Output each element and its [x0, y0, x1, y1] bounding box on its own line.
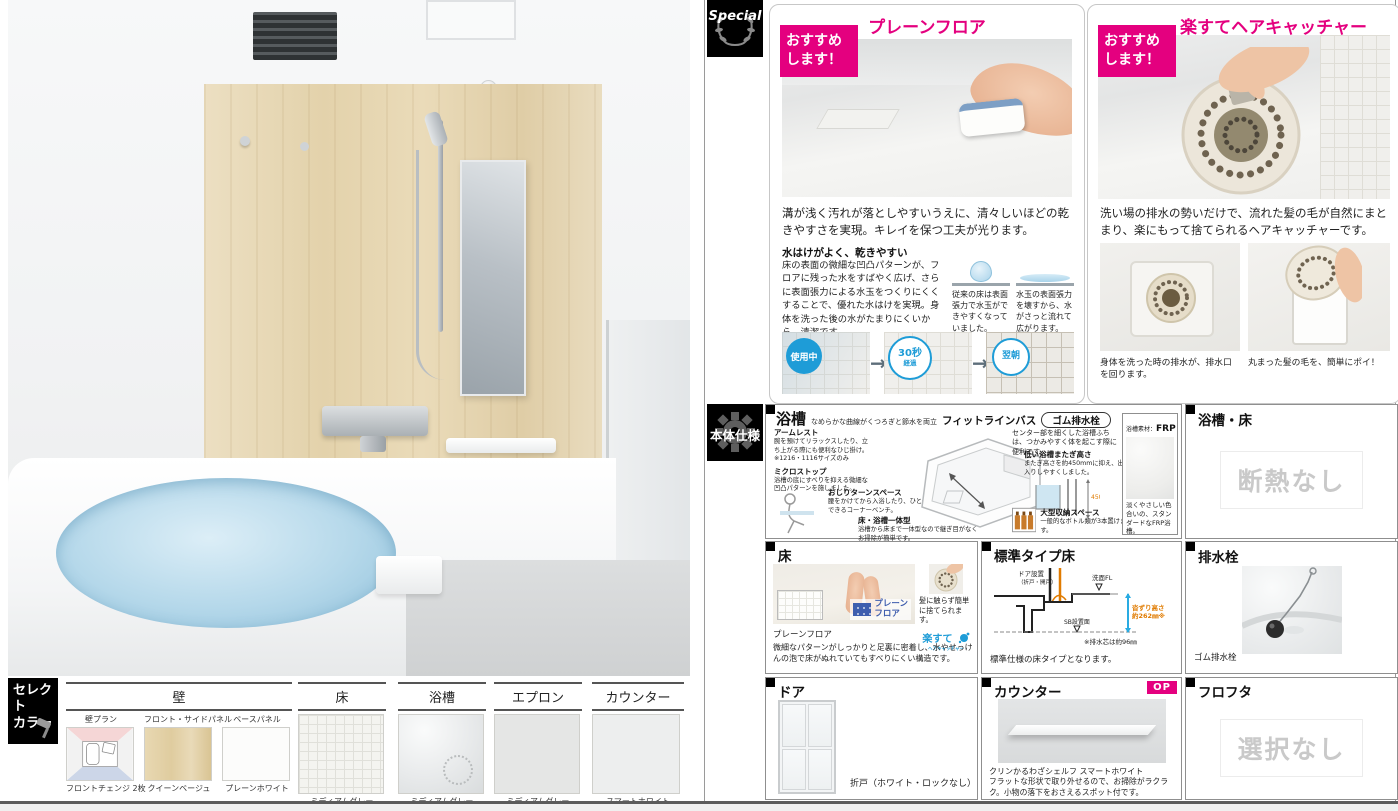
color-swatch — [298, 714, 384, 794]
hair-catcher-panel: おすすめ します！ 楽すてヘアキャッチャー 洗い場の排水の勢いだけで、流れた髪の… — [1087, 4, 1398, 404]
drain-plug-panel: 排水栓 ゴム排水栓 — [1185, 541, 1398, 674]
color-group-apron: エプロン ミディアムグレー — [494, 682, 582, 807]
spec-section-badge: 本体仕様 — [707, 404, 763, 461]
tub-floor-title: 浴槽・床 — [1198, 409, 1397, 429]
spread-water-icon — [1020, 274, 1070, 282]
floor-caption: プレーンフロア 微細なパターンがしっかりと足裏に密着し、水やせっけんの泡で床がぬ… — [773, 630, 973, 664]
wall-hook — [300, 142, 309, 151]
wall-plan-diagram — [66, 727, 134, 781]
ceiling-vent — [253, 12, 337, 60]
title-square — [1186, 542, 1195, 551]
recommend-badge: おすすめ します！ — [780, 25, 858, 77]
bathtub-water — [56, 478, 396, 628]
arrow-right-icon: → — [870, 351, 884, 375]
shower-door — [606, 320, 690, 588]
counter-panel: カウンター OP クリンかるわざシェルフ スマートホワイト フラットな形状で取り… — [981, 677, 1182, 800]
plain-floor-logo-icon — [853, 603, 871, 616]
step-label-circle: 30秒 経過 — [888, 336, 932, 380]
plain-floor-lead: 溝が浅く汚れが落としやすいうえに、清々しいほどの乾きやすさを実現。キレイを保つ工… — [782, 205, 1074, 240]
spec-section-label: 本体仕様 — [707, 425, 763, 444]
floor-section-diagram: ドア設置 （折戸・開戸） 洗面FL SB設置面 沓ずり高さ 約262㎜※ ※排水… — [988, 566, 1176, 648]
drain-mini-icon — [929, 564, 963, 594]
color-group-bathtub: 浴槽 ミディアムグレー — [398, 682, 486, 807]
standard-floor-title: 標準タイプ床 — [994, 545, 1181, 565]
color-item-wall-plan: 壁プラン フロントチェンジ 2枚 — [66, 714, 136, 794]
door-caption: 折戸（ホワイト・ロックなし） — [850, 778, 976, 791]
bathtub-storage-note: 大型収納スペース 一般的なボトル類が3本置けます。 — [1012, 507, 1132, 535]
bathroom-floor — [406, 560, 690, 676]
door-panel: ドア 折戸（ホワイト・ロックなし） — [765, 677, 978, 800]
plain-floor-body: 床の表面の微細な凹凸パターンが、フロアに残った水をすばやく広げ、さらに表面張力に… — [782, 259, 944, 340]
hair-caption-left: 身体を洗った時の排水が、排水口を回ります。 — [1100, 357, 1240, 382]
tub-lid-title: フロフタ — [1198, 681, 1397, 701]
counter-photo — [998, 699, 1166, 763]
drain-illustration — [1156, 47, 1326, 197]
drain-plug-photo — [1242, 566, 1342, 654]
drain-plug-caption: ゴム排水栓 — [1194, 653, 1237, 665]
step-label-circle: 使用中 — [786, 338, 822, 374]
svg-text:沓ずり高さ: 沓ずり高さ — [1131, 603, 1165, 612]
bath-stool — [376, 556, 442, 594]
no-selection-label: 選択なし — [1220, 719, 1362, 777]
svg-text:洗面FL: 洗面FL — [1092, 573, 1113, 582]
hair-photo-right — [1248, 243, 1390, 351]
faucet-spout — [360, 436, 386, 452]
plain-floor-subhead: 水はけがよく、乾きやすい — [782, 245, 907, 260]
color-group-counter: カウンター スマートホワイト — [592, 682, 684, 807]
tub-floor-panel: 浴槽・床 断熱なし — [1185, 404, 1398, 539]
rubber-drain-badge: ゴム排水栓 — [1041, 412, 1111, 428]
floor-tile-swatch — [777, 590, 823, 620]
title-square — [766, 542, 775, 551]
title-square — [982, 678, 991, 687]
bathtub-product-name: フィットラインバス — [942, 413, 1036, 428]
floor-spec-title: 床 — [778, 545, 977, 565]
shower-hose — [416, 150, 445, 380]
arrow-right-icon: → — [972, 351, 986, 375]
frp-swatch — [1126, 437, 1174, 499]
svg-text:ドア設置: ドア設置 — [1018, 569, 1045, 578]
color-group-wall: 壁 壁プラン フロントチェンジ 2枚 フロント・サイドパネル — [66, 682, 292, 794]
tub-lid-panel: フロフタ 選択なし — [1185, 677, 1398, 800]
droplet-icon — [970, 261, 992, 282]
hair-caption-right: 丸まった髪の毛を、簡単にポイ！ — [1248, 357, 1390, 369]
hair-photo-left — [1100, 243, 1240, 351]
bathtub-low-note: 低い浴槽またぎ高さ またぎ高さを約450mmに抑え、出入りしやすくしました。 — [1024, 449, 1128, 477]
bathtub-spec-panel: 浴槽 なめらかな曲線がくつろぎと節水を両立 フィットラインバス ゴム排水栓 アー… — [765, 404, 1182, 539]
special-section-badge: Special — [707, 0, 763, 57]
title-square — [982, 542, 991, 551]
select-color-label-1: セレクト — [13, 683, 52, 714]
standard-floor-panel: 標準タイプ床 ドア設置 （折戸・開戸） 洗面FL SB設置面 沓ずり高さ — [981, 541, 1182, 674]
bathroom-photo — [8, 0, 690, 676]
color-group-header: 壁 — [66, 682, 292, 711]
strainer-icon — [1276, 241, 1362, 311]
door-illustration — [778, 700, 836, 794]
color-swatch — [222, 727, 290, 781]
drying-steps: 使用中 → 30秒 経過 → 翌朝 — [782, 331, 1074, 395]
ceiling-access-panel — [426, 0, 516, 40]
mirror — [460, 160, 526, 396]
floor-photo: プレーンフロア — [773, 564, 915, 624]
plain-floor-logo: プレーンフロア — [850, 599, 911, 620]
title-square — [1186, 405, 1195, 414]
plain-floor-panel: おすすめ します！ プレーンフロア 溝が浅く汚れが落としやすいうえに、清々しいほ… — [769, 4, 1085, 404]
sponge — [958, 98, 1025, 138]
paint-roller-icon — [35, 718, 55, 740]
color-swatch — [398, 714, 484, 794]
faucet-unit — [322, 406, 428, 436]
bottles-icon — [1012, 507, 1036, 533]
svg-text:約262㎜※: 約262㎜※ — [1132, 611, 1165, 620]
floor-spec-panel: 床 プレーンフロア 髪に触らず簡単に捨てられます。 — [765, 541, 978, 674]
title-square — [766, 405, 775, 414]
door-title: ドア — [778, 681, 977, 701]
tub-material-box: 浴槽素材：FRP 淡くやさしい色合いの、スタンダードなFRP浴槽。 — [1122, 413, 1178, 535]
step-label-circle: 翌朝 — [992, 338, 1030, 376]
shelf-illustration — [1008, 725, 1156, 735]
svg-text:※排水芯は約96㎜: ※排水芯は約96㎜ — [1084, 637, 1137, 646]
title-square — [1186, 678, 1195, 687]
recommend-badge: おすすめ します！ — [1098, 25, 1176, 77]
step-photo-30sec: 30秒 経過 — [884, 332, 972, 394]
wall-shelf — [446, 438, 556, 453]
drain-small-icon — [1144, 271, 1198, 325]
step-photo-in-use: 使用中 — [782, 332, 870, 394]
catalog-page: セレクト カラー 壁 壁プラン フロントチェンジ — [0, 0, 1398, 811]
sitting-person-icon — [774, 491, 820, 537]
droplet-diagram-after: 水玉の表面張力を壊すから、水がさっと流れて広がります。 — [1016, 257, 1074, 334]
color-swatch — [592, 714, 680, 794]
bathtub-left-notes: アームレスト 腕を預けてリラックスしたり、立ち上がる際にも便利なひじ掛け。 ※1… — [774, 427, 870, 494]
bottom-margin — [0, 804, 1398, 811]
color-group-floor: 床 ミディアムグレー — [298, 682, 386, 807]
color-swatch — [144, 727, 212, 781]
color-swatch — [494, 714, 580, 794]
bathtub-spec-title: 浴槽 — [776, 408, 806, 429]
svg-text:450: 450 — [1091, 494, 1100, 501]
title-square — [766, 678, 775, 687]
color-item-base-panel: ベースパネル プレーンホワイト — [222, 714, 292, 794]
hair-catcher-lead: 洗い場の排水の勢いだけで、流れた髪の毛が自然にまとまり、楽にもって捨てられるヘア… — [1100, 205, 1390, 240]
option-badge: OP — [1147, 681, 1177, 694]
droplet-diagram-before: 従来の床は表面張力で水玉ができやすくなっていました。 — [952, 257, 1010, 334]
no-insulation-label: 断熱なし — [1220, 451, 1362, 509]
drain-plug-illustration — [1242, 566, 1342, 654]
step-photo-next-morning: 翌朝 — [986, 332, 1074, 394]
drain-plug-title: 排水栓 — [1198, 546, 1397, 566]
special-section-label: Special — [707, 9, 763, 24]
wall-hook — [240, 136, 250, 146]
svg-text:SB設置面: SB設置面 — [1064, 618, 1090, 626]
counter-caption: クリンかるわざシェルフ スマートホワイト フラットな形状で取り外せるので、お掃除… — [989, 766, 1177, 799]
color-item-front-side-panel: フロント・サイドパネル クイーンベージュ — [144, 714, 214, 794]
select-color-badge: セレクト カラー — [8, 678, 58, 744]
standard-floor-caption: 標準仕様の床タイプとなります。 — [990, 655, 1116, 667]
spec-sheet: Special おすすめ します！ プレーンフロア 溝が浅く汚れが落としやすいう… — [704, 0, 1396, 801]
